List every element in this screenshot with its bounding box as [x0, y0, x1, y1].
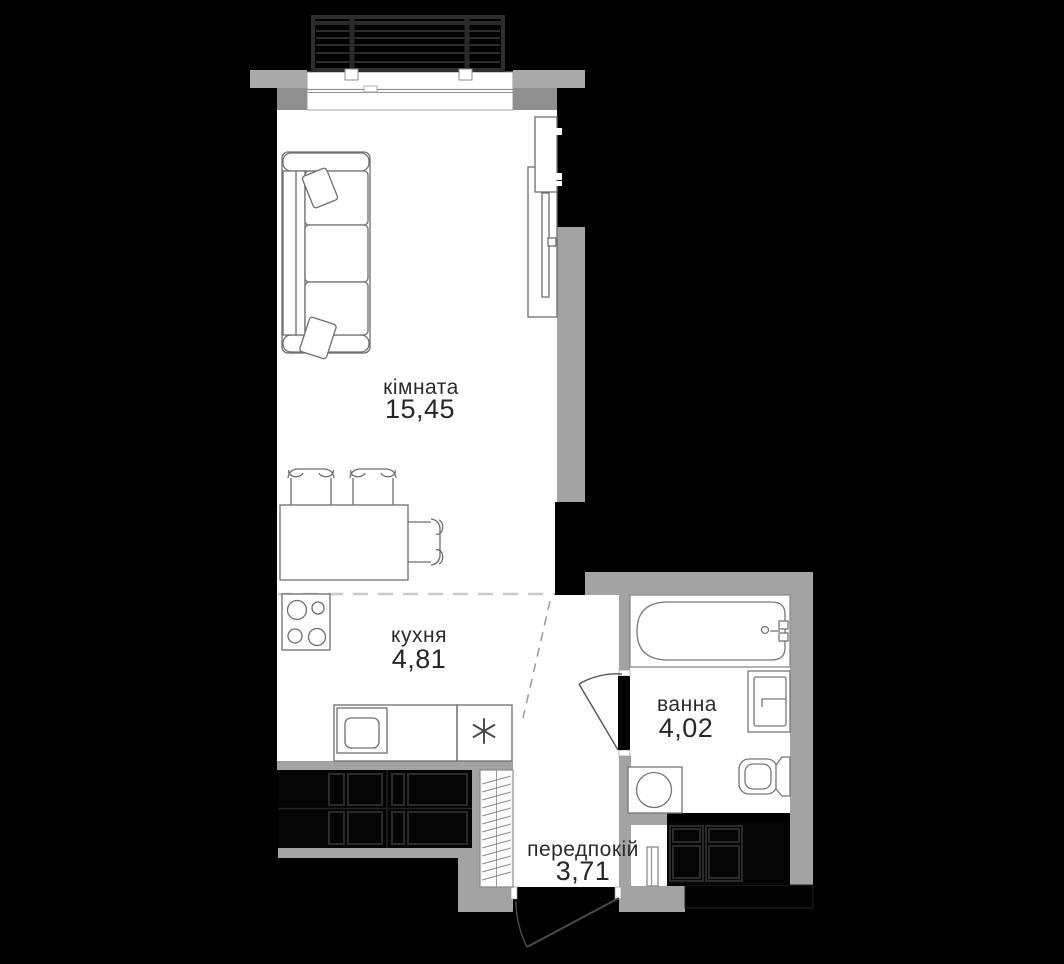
closet-block	[667, 822, 790, 885]
dining-table	[280, 505, 408, 580]
bottom-wall-left	[278, 848, 458, 858]
left-wall	[250, 88, 277, 860]
entrance-wall-right	[619, 886, 685, 912]
toilet-tank	[776, 757, 790, 796]
upper-cabinet	[535, 117, 557, 192]
bathroom-bottom-wall	[619, 813, 667, 825]
right-wall-gray	[557, 227, 585, 502]
entrance-jamb-left	[511, 887, 517, 899]
center-wall-block-lower	[555, 502, 586, 595]
stove	[282, 594, 330, 650]
railing-foot	[459, 69, 472, 80]
railing-foot	[345, 69, 358, 80]
wall-top-right-inner	[513, 88, 557, 110]
bath-door-jamb-bottom	[619, 750, 630, 756]
floor-plan: кімната 15,45 кухня 4,81 ванна 4,02 пере…	[0, 0, 1064, 964]
kitchen-cabinets	[278, 770, 480, 848]
wall-mount-mark	[556, 173, 562, 180]
wall-mount-mark	[556, 128, 562, 135]
hallway-wardrobe	[480, 770, 513, 887]
sofa-backrest	[283, 171, 305, 335]
wall-mount-mark	[556, 181, 562, 186]
sofa-cushion	[305, 225, 368, 282]
bathroom-door-leaf	[618, 676, 629, 750]
wall-top-left-outer	[250, 70, 307, 88]
floor-plan-canvas: кімната 15,45 кухня 4,81 ванна 4,02 пере…	[0, 0, 1064, 964]
entrance-jamb-right	[615, 887, 621, 899]
bathroom-area: 4,02	[659, 713, 714, 743]
entrance-wall-left	[480, 887, 513, 912]
bathroom-top-wall	[585, 572, 813, 595]
hallway-area: 3,71	[556, 856, 611, 886]
kitchen-bottom-wall	[277, 761, 513, 770]
right-wall-upper-black	[557, 88, 585, 227]
vent-duct	[647, 847, 658, 886]
kitchen-area: 4,81	[392, 644, 447, 674]
window-band	[307, 72, 513, 110]
wall-top-right-outer	[513, 70, 585, 88]
window-break-symbol	[364, 86, 377, 92]
built-in-closet	[667, 822, 790, 885]
bathtub-faucet	[779, 621, 788, 629]
cabinet-end-wall	[472, 770, 480, 848]
living-room-area: 15,45	[385, 394, 455, 424]
wall-top-left-inner	[277, 88, 307, 110]
bathroom-left-wall-upper	[619, 594, 630, 670]
bottom-wall-step	[458, 848, 480, 912]
bottom-right-black-wall	[685, 885, 813, 908]
bathtub-faucet	[779, 633, 788, 641]
tv-bracket	[548, 238, 556, 246]
bath-door-jamb-top	[619, 670, 630, 676]
bathroom-right-wall	[790, 572, 813, 885]
sofa	[282, 152, 370, 359]
